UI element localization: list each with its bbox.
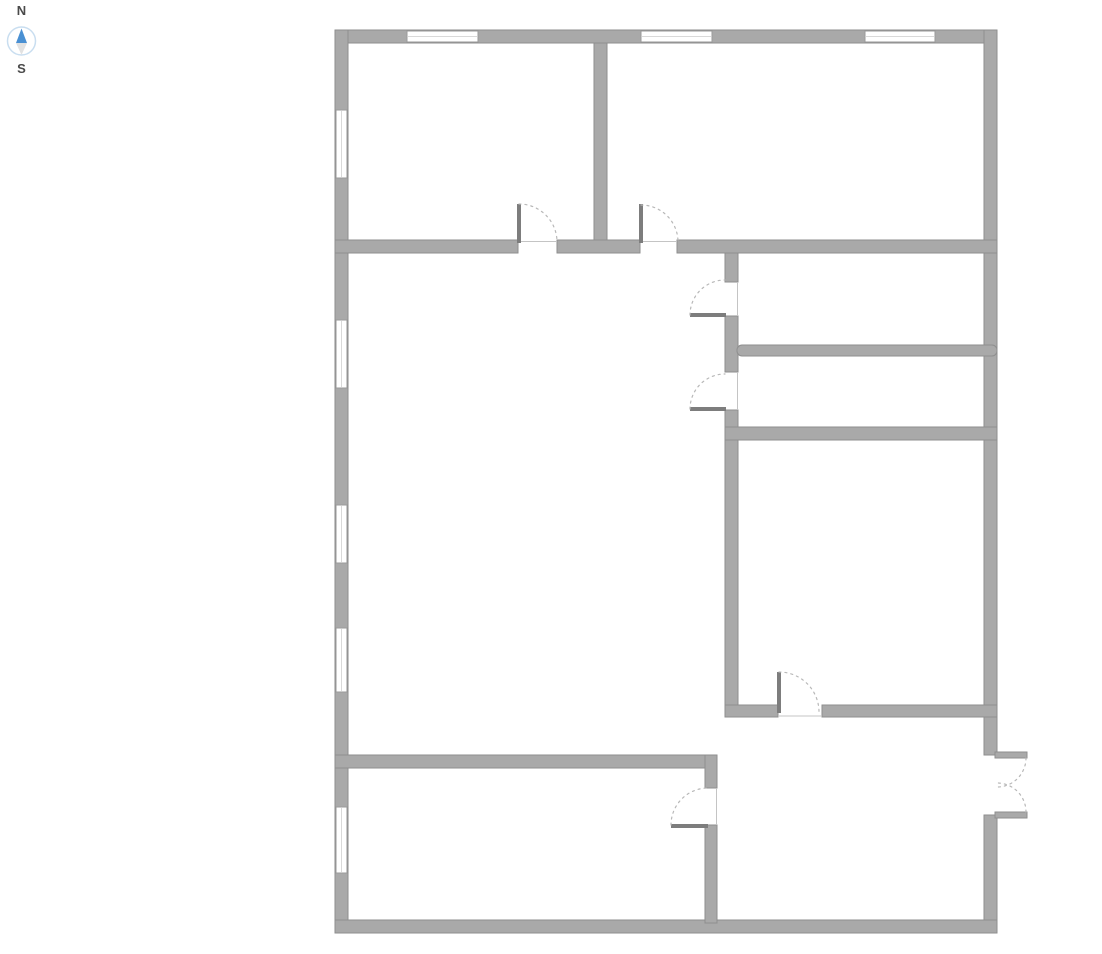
exterior-right-wall-upper [984,30,997,755]
floor-plan-page: N S [0,0,1102,954]
entry-door-arc-lower [997,783,1026,812]
garage-door-panel [671,824,708,828]
hall-wall-segment-2 [725,316,738,372]
door-panels-layer [517,204,781,828]
top-right-room-door-arc [641,205,678,242]
garage-top-wall [335,755,717,768]
entry-door-arc-upper [997,758,1026,787]
garage-right-wall-upper [705,755,717,788]
top-right-room-door-panel [639,204,643,243]
upper-hall-wall-west [335,240,518,253]
entry-door-leaf-upper [995,752,1027,758]
hall-wall-segment-3 [725,410,738,717]
hall-door-1-panel [690,313,726,317]
top-left-room-door-panel [517,204,521,243]
hall-door-1-arc [690,280,725,315]
upper-hall-wall-mid [557,240,640,253]
compass-north-label: N [17,3,26,18]
compass-south-label: S [17,61,26,76]
compass-rose: N S [8,3,36,76]
door-thresholds-layer [518,242,822,826]
garage-door-arc [671,788,708,825]
top-rooms-divider-wall [594,43,607,241]
bedroom-top-wall [725,427,997,440]
bedroom-door-arc [779,672,819,712]
bedroom-bottom-wall-west [725,705,778,717]
floor-plan-drawing: N S [0,0,1102,954]
windows-layer [336,31,935,873]
small-rooms-divider-wall [737,345,997,356]
top-left-room-door-arc [519,204,557,242]
exterior-right-wall-lower [984,815,997,933]
garage-right-wall-lower [705,825,717,923]
bedroom-bottom-wall-east [822,705,997,717]
door-swing-arcs-layer [519,204,1026,825]
hall-wall-segment-1 [725,253,738,282]
entry-door-leaf-lower [995,812,1027,818]
exterior-bottom-wall [335,920,997,933]
hall-door-2-panel [690,407,726,411]
walls-layer [335,30,1027,933]
bedroom-door-panel [777,672,781,713]
hall-door-2-arc [690,374,725,409]
upper-hall-wall-east [677,240,997,253]
